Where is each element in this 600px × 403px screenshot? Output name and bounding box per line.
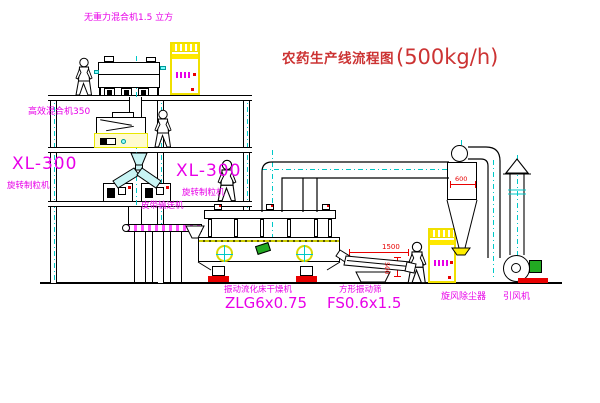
label-fan: 引风机 — [503, 293, 530, 302]
flow-diagram: 农药生产线流程图 (500kg/h) 无重力混合机1.5 立方 高效混合机350… — [0, 0, 600, 403]
label-dryer-model: ZLG6x0.75 — [225, 296, 307, 311]
label-granulator-mid-model: XL-300 — [176, 163, 241, 180]
label-high-mixer: 高效混合机350 — [28, 108, 90, 117]
label-gravity-mixer: 无重力混合机1.5 立方 — [84, 14, 173, 23]
label-granulator-left-model: XL-300 — [12, 156, 77, 173]
title-text: 农药生产线流程图 — [282, 47, 394, 67]
title-capacity: (500kg/h) — [396, 45, 498, 69]
dim-sieve-height: 500 — [384, 262, 391, 274]
label-cyclone: 旋风除尘器 — [441, 293, 486, 302]
label-sieve-model: FS0.6x1.5 — [327, 296, 401, 311]
diagram-title: 农药生产线流程图 (500kg/h) — [282, 45, 498, 69]
diagram-labels: 农药生产线流程图 (500kg/h) 无重力混合机1.5 立方 高效混合机350… — [0, 0, 600, 403]
label-granulator-mid-name: 旋转制粒机 — [182, 189, 225, 198]
label-belt-conveyor: 皮带输送机 — [141, 202, 184, 211]
dim-cyclone-dia: 600 — [455, 176, 467, 183]
dim-sieve-length: 1500 — [382, 244, 400, 251]
label-granulator-left-name: 旋转制粒机 — [7, 182, 50, 191]
